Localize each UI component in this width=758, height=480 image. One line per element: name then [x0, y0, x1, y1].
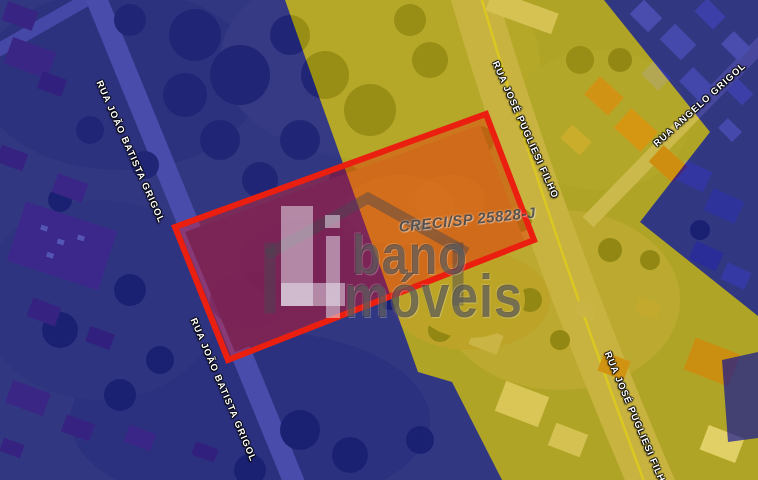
satellite-map-canvas — [0, 0, 758, 480]
zone-blue-parcel-east-edge — [722, 352, 758, 442]
aerial-map-image: RUA JOÃO BATISTA GRIGOL RUA JOÃO BATISTA… — [0, 0, 758, 480]
